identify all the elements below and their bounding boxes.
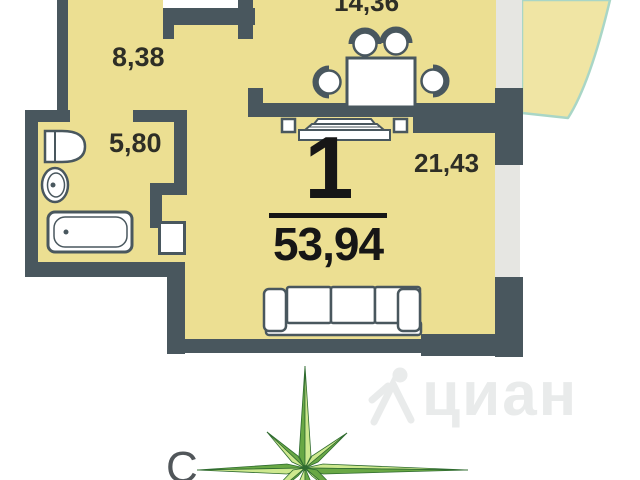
sofa (262, 284, 424, 338)
sofa-cushion (331, 287, 375, 323)
window-kitchen (496, 0, 522, 90)
apartment-summary: 1 53,94 (258, 126, 398, 268)
area-label-hallway: 8,38 (112, 44, 165, 71)
sofa-armrest (264, 289, 286, 331)
chair (422, 70, 445, 93)
sink-icon (45, 131, 85, 162)
balcony (518, 0, 620, 130)
floorplan-image: 8,38 14,36 5,80 21,43 1 53,94 циан (0, 0, 640, 480)
sofa-armrest (398, 289, 420, 331)
room-count: 1 (258, 126, 398, 210)
wall-bath-bottom (25, 262, 175, 277)
wall-left-outer (25, 110, 38, 277)
wall-bottom-right (421, 334, 497, 356)
top-door-opening (163, 0, 238, 8)
dining-table (347, 58, 415, 107)
sofa-cushion (287, 287, 331, 323)
window-living-room (495, 165, 520, 278)
bathtub-icon (48, 212, 132, 252)
area-label-bathroom: 5,80 (109, 130, 162, 157)
wall-right-lower (495, 277, 523, 357)
compass-north-label: С (166, 446, 198, 480)
chair (385, 32, 408, 55)
toilet-icon (42, 168, 68, 202)
wall-top-jamb (238, 0, 253, 39)
wall-left-upper (57, 0, 68, 122)
wall-kitchen-jamb (248, 88, 263, 115)
dining-set (312, 8, 452, 110)
compass-rose (190, 358, 480, 480)
chair (318, 71, 341, 94)
area-label-living-room: 21,43 (414, 150, 479, 176)
wall-top-stub (163, 25, 174, 39)
total-area: 53,94 (258, 220, 398, 268)
chair (354, 33, 377, 56)
wall-bottom (167, 339, 425, 353)
area-label-kitchen: 14,36 (334, 0, 399, 15)
wall-right-mid (495, 88, 523, 165)
